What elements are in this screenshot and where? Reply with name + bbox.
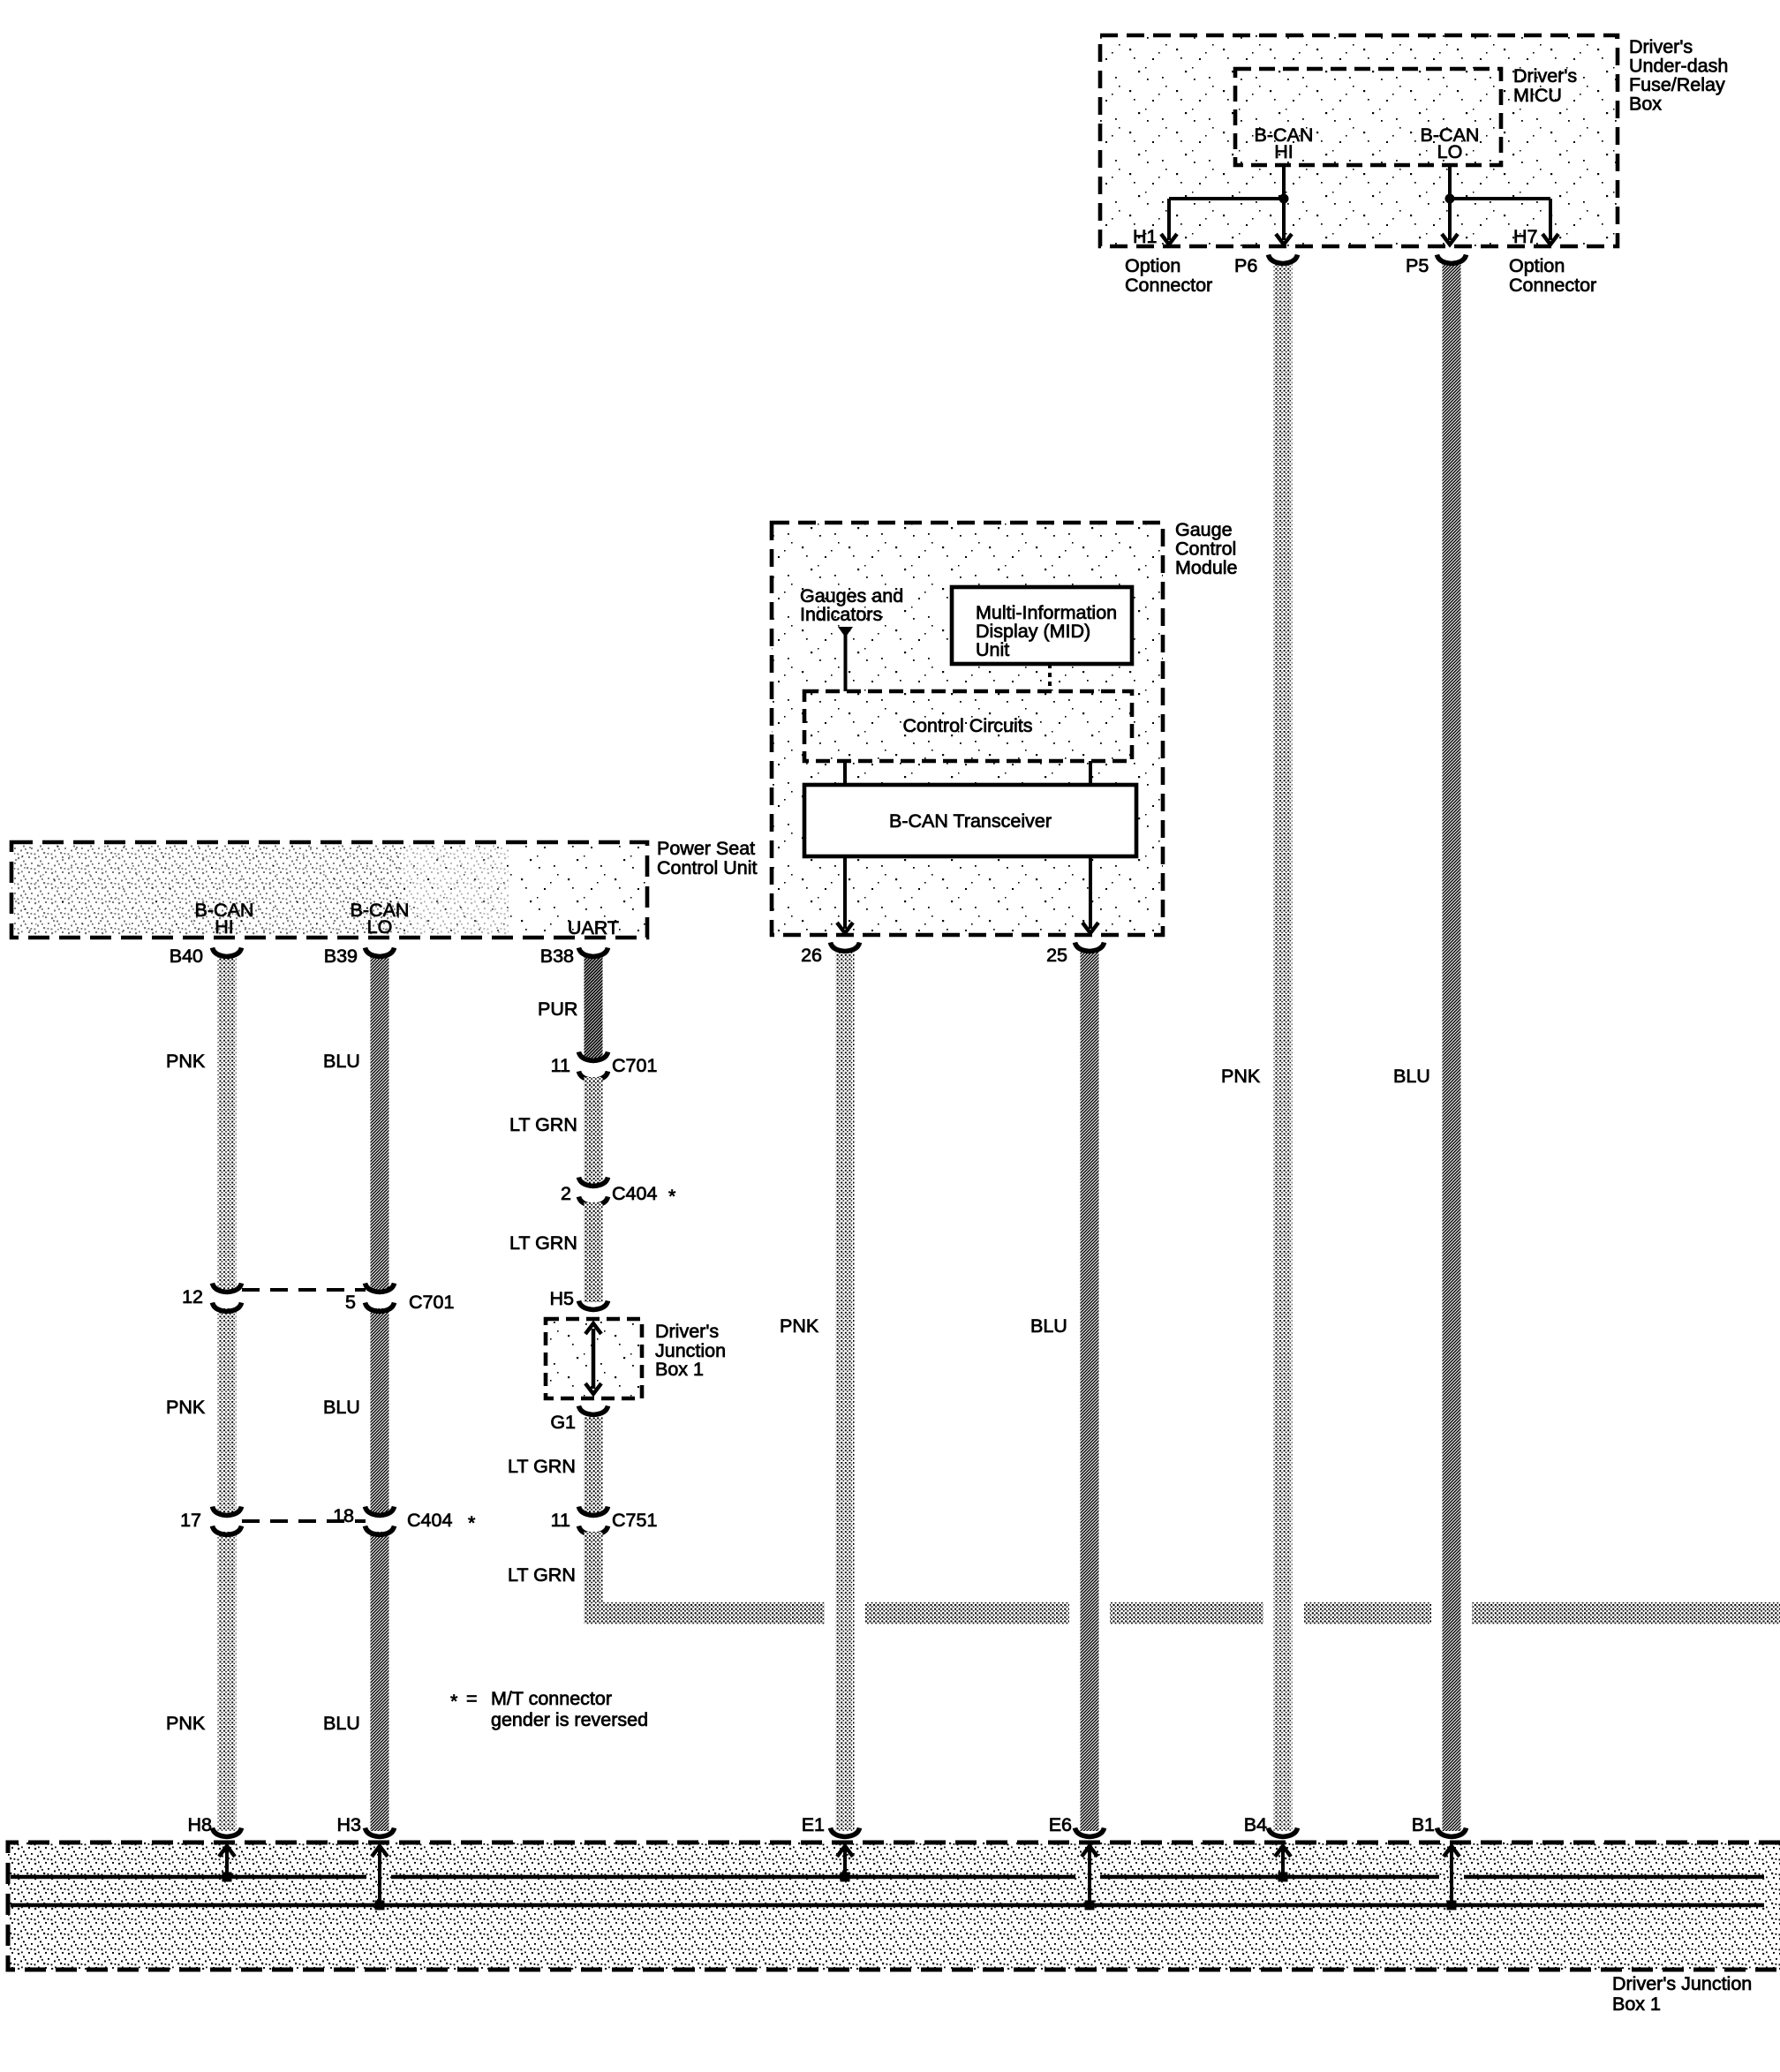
svg-text:Under-dash: Under-dash [1629,56,1728,77]
svg-text:MICU: MICU [1513,85,1562,106]
svg-text:B4: B4 [1244,1814,1267,1835]
svg-text:11: 11 [551,1510,570,1531]
svg-text:M/T connector: M/T connector [491,1688,612,1709]
svg-text:Option: Option [1509,255,1565,276]
svg-text:Driver's Junction: Driver's Junction [1612,1973,1752,1994]
svg-text:P6: P6 [1234,255,1257,276]
svg-text:PNK: PNK [166,1713,206,1734]
svg-text:gender is reversed: gender is reversed [491,1709,648,1730]
svg-text:Connector: Connector [1509,275,1596,296]
svg-text:B1: B1 [1412,1814,1435,1835]
svg-text:Power Seat: Power Seat [657,838,755,859]
svg-text:Connector: Connector [1125,275,1212,296]
svg-text:18: 18 [333,1505,354,1526]
svg-text:Box 1: Box 1 [1612,1993,1661,2015]
svg-text:Box 1: Box 1 [655,1359,704,1380]
svg-text:*: * [468,1512,476,1533]
svg-text:Control: Control [1175,539,1236,560]
svg-text:C701: C701 [409,1292,454,1313]
svg-text:PNK: PNK [780,1315,819,1337]
svg-text:E1: E1 [802,1814,825,1835]
svg-text:Driver's: Driver's [1513,65,1577,87]
svg-text:LT GRN: LT GRN [509,1114,577,1135]
svg-text:P5: P5 [1406,255,1429,276]
svg-text:B39: B39 [324,946,358,967]
svg-text:LO: LO [367,916,393,938]
svg-text:Unit: Unit [976,639,1009,660]
svg-text:PNK: PNK [166,1051,206,1072]
svg-text:Module: Module [1175,557,1238,578]
svg-text:Fuse/Relay: Fuse/Relay [1629,74,1725,95]
svg-text:BLU: BLU [1393,1066,1430,1087]
svg-text:Driver's: Driver's [1629,36,1693,57]
svg-text:H1: H1 [1133,226,1157,247]
svg-text:H3: H3 [337,1814,362,1835]
svg-text:B-CAN Transceiver: B-CAN Transceiver [889,810,1052,832]
svg-text:17: 17 [180,1510,201,1531]
svg-text:B38: B38 [540,946,574,967]
svg-text:C701: C701 [612,1055,657,1076]
svg-text:2: 2 [561,1183,571,1204]
svg-text:*: * [450,1691,458,1712]
svg-text:H8: H8 [188,1814,213,1835]
svg-text:BLU: BLU [1030,1315,1067,1337]
svg-text:LO: LO [1437,141,1463,162]
svg-text:BLU: BLU [323,1397,360,1418]
svg-text:HI: HI [1274,141,1294,162]
svg-text:Control Circuits: Control Circuits [903,715,1033,736]
svg-text:Control Unit: Control Unit [657,857,758,878]
svg-text:Option: Option [1125,255,1180,276]
svg-text:G1: G1 [550,1412,576,1433]
svg-text:C404: C404 [407,1510,452,1531]
svg-text:Indicators: Indicators [800,604,882,625]
svg-text:12: 12 [182,1286,203,1307]
svg-text:UART: UART [568,917,619,938]
svg-text:HI: HI [215,916,234,938]
svg-text:PNK: PNK [166,1397,206,1418]
svg-text:11: 11 [551,1055,570,1076]
svg-text:Driver's: Driver's [655,1321,719,1342]
svg-text:=: = [466,1688,478,1709]
svg-text:LT GRN: LT GRN [508,1564,576,1586]
svg-text:BLU: BLU [323,1051,360,1072]
svg-text:LT GRN: LT GRN [508,1456,576,1477]
svg-text:H5: H5 [550,1288,575,1309]
svg-text:PUR: PUR [538,998,577,1020]
svg-text:E6: E6 [1049,1814,1072,1835]
svg-text:26: 26 [801,945,822,966]
svg-text:Box: Box [1629,94,1662,115]
svg-text:PNK: PNK [1221,1066,1261,1087]
svg-text:*: * [668,1186,676,1207]
svg-text:5: 5 [345,1292,356,1313]
svg-text:Gauge: Gauge [1175,519,1233,540]
svg-text:BLU: BLU [323,1713,360,1734]
svg-text:B40: B40 [170,946,203,967]
svg-text:25: 25 [1046,945,1067,966]
svg-text:LT GRN: LT GRN [509,1232,577,1254]
svg-text:C751: C751 [612,1510,657,1531]
svg-text:C404: C404 [612,1183,657,1204]
svg-text:H7: H7 [1513,226,1537,247]
